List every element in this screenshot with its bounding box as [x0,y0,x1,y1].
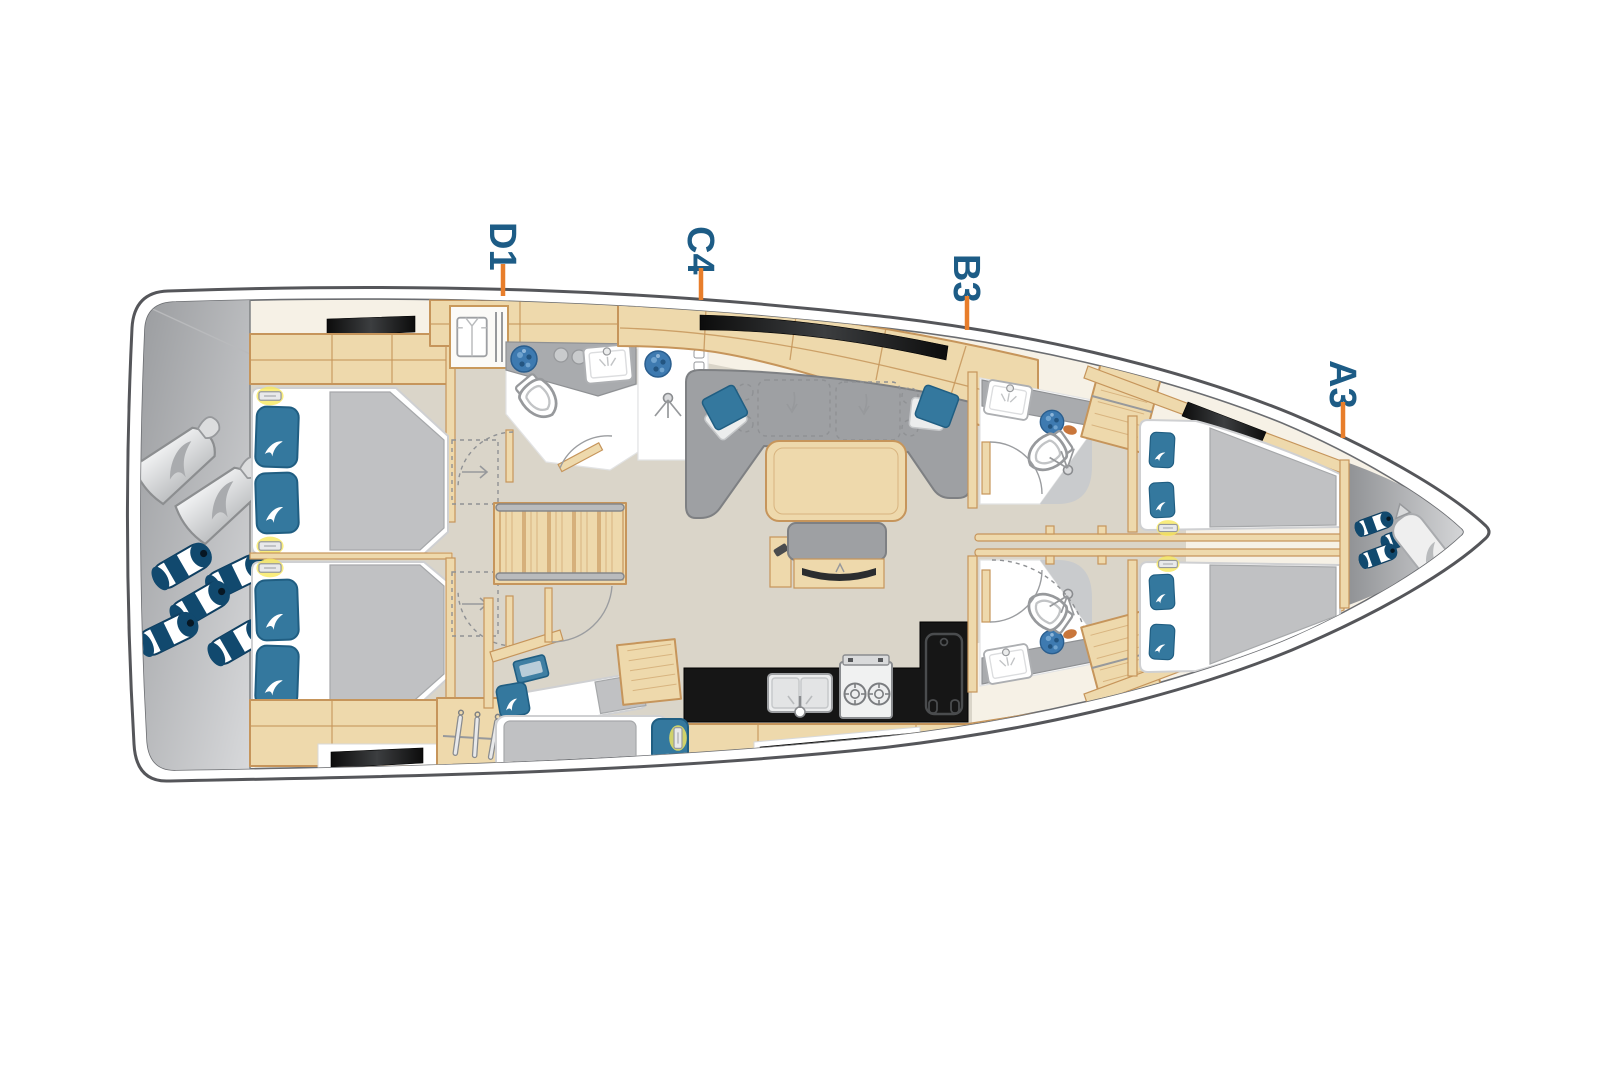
aft-cabins-partition [250,553,452,559]
salon-table [766,441,906,521]
aft-cabin-port [250,316,455,555]
vberth-starboard [1140,562,1340,672]
cabin-marker-label: D1 [481,222,523,271]
cabin-marker-label: A3 [1321,360,1363,409]
stair-handrail [496,504,624,511]
cabin-marker-label: B3 [945,254,987,303]
pillow [495,682,530,719]
passage-rail [975,534,1345,541]
head-door-leaf [982,442,990,494]
mid-cabin-wardrobe [617,639,681,705]
stair-treads [500,507,623,580]
mosaic-bowl [511,346,537,372]
reading-light [256,387,283,406]
reading-light [1156,520,1179,536]
shower-control [694,362,704,370]
bathroom-sink [983,379,1032,420]
wardrobe-shirt [450,306,508,368]
burner-icon [845,684,866,705]
salon-bench-tv [770,523,886,588]
pillow [255,406,299,467]
reading-light [669,725,687,751]
head-wall [968,372,977,508]
cabin-marker-label: C4 [679,226,721,275]
floorplan-canvas: D1 C4 B3 A3 [0,0,1620,1080]
berth-head-wall [1128,416,1137,532]
faucet [795,707,805,717]
pillow [255,579,299,640]
cabin-marker-c4: C4 [679,226,721,300]
bulkhead-wall [446,558,455,702]
cabin-marker-a3: A3 [1321,360,1363,438]
reading-light [256,559,283,578]
rail-fitting [1098,556,1106,564]
rail-fitting [1046,556,1054,564]
bench-seat [788,523,886,560]
cabin-door-leaf [545,588,552,642]
pillow [255,472,299,533]
forepeak-bulkhead [1340,460,1349,608]
passage-rail [975,549,1345,556]
cabin-marker-b3: B3 [945,254,987,330]
pillow [1149,574,1175,610]
bathroom-sink [583,344,633,384]
galley-stove [840,655,892,718]
mosaic-drain [645,351,671,377]
rail-fitting [1046,526,1054,534]
companionway-stairs [494,503,626,584]
cabin-door-leaf [506,596,513,648]
fridge-handle [929,700,937,713]
double-bed-port [252,387,448,556]
fridge-handle [951,700,959,713]
rail-fitting [1098,526,1106,534]
stair-handrail [496,573,624,580]
shirt-icon [457,318,486,357]
bathroom-sink [983,643,1032,684]
yacht-floorplan: D1 C4 B3 A3 [0,0,1620,1080]
pillow [1149,482,1175,518]
head-wall [968,556,977,692]
berth-head-wall [1128,560,1137,676]
aft-port-cabinets [250,334,452,384]
pillow [1149,432,1175,468]
cabin-door-leaf [506,430,513,482]
aft-starboard-cabinets [250,700,452,770]
counter-knob [554,348,568,362]
burner-icon [869,684,890,705]
galley-sink [768,674,832,717]
pillow [1149,624,1175,660]
cabin-marker-d1: D1 [481,222,523,296]
pillow [255,645,299,706]
reading-light [1156,556,1179,572]
head-door-leaf [982,570,990,622]
